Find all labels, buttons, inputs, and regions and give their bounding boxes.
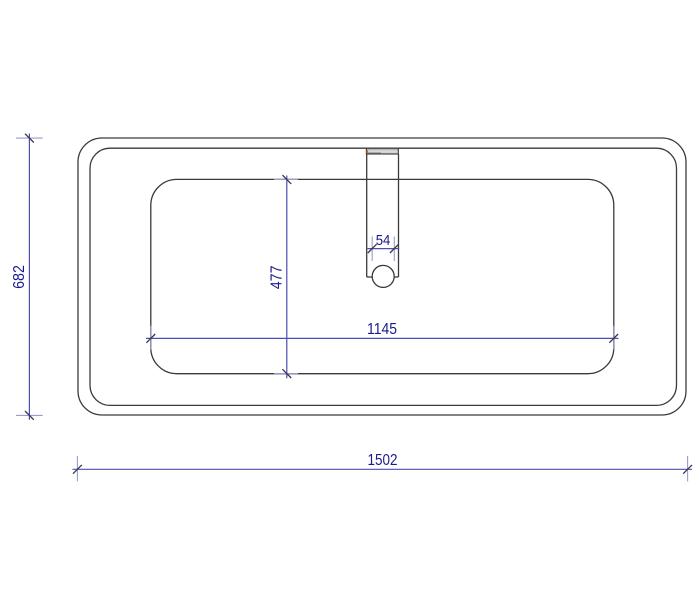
svg-text:682: 682 xyxy=(11,265,28,289)
svg-text:54: 54 xyxy=(376,232,391,249)
svg-text:1145: 1145 xyxy=(367,321,397,338)
svg-text:477: 477 xyxy=(269,265,286,289)
svg-text:1502: 1502 xyxy=(368,452,398,469)
